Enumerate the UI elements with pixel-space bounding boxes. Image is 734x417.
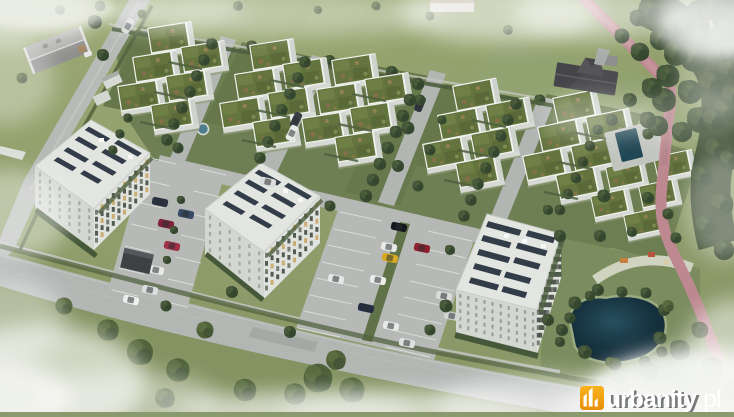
svg-text:urbanity.pl: urbanity.pl [606,386,721,412]
